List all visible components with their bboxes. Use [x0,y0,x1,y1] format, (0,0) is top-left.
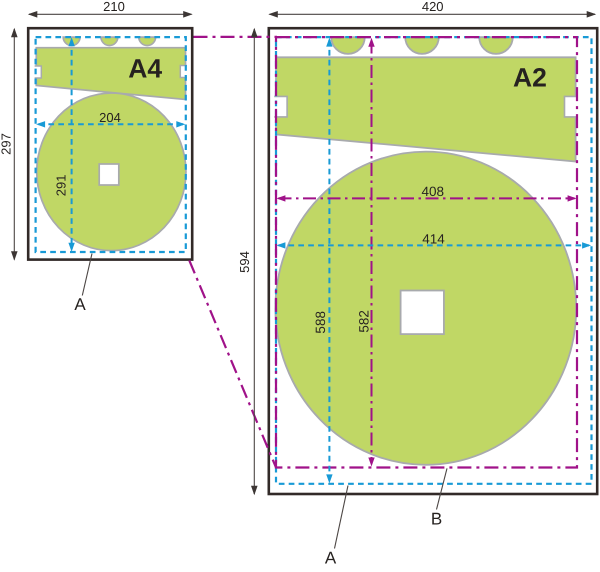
svg-text:420: 420 [422,0,444,14]
svg-text:A2: A2 [513,62,547,92]
svg-text:588: 588 [313,311,328,334]
svg-text:408: 408 [422,184,445,199]
svg-text:A4: A4 [128,54,162,84]
svg-text:A: A [74,295,86,314]
svg-text:582: 582 [356,310,371,333]
svg-text:297: 297 [0,133,13,155]
svg-text:594: 594 [237,251,252,273]
svg-text:210: 210 [103,0,125,14]
svg-text:204: 204 [99,110,121,125]
svg-text:B: B [431,510,442,529]
svg-text:291: 291 [53,175,68,197]
svg-text:414: 414 [422,231,445,246]
svg-text:A: A [325,549,337,568]
